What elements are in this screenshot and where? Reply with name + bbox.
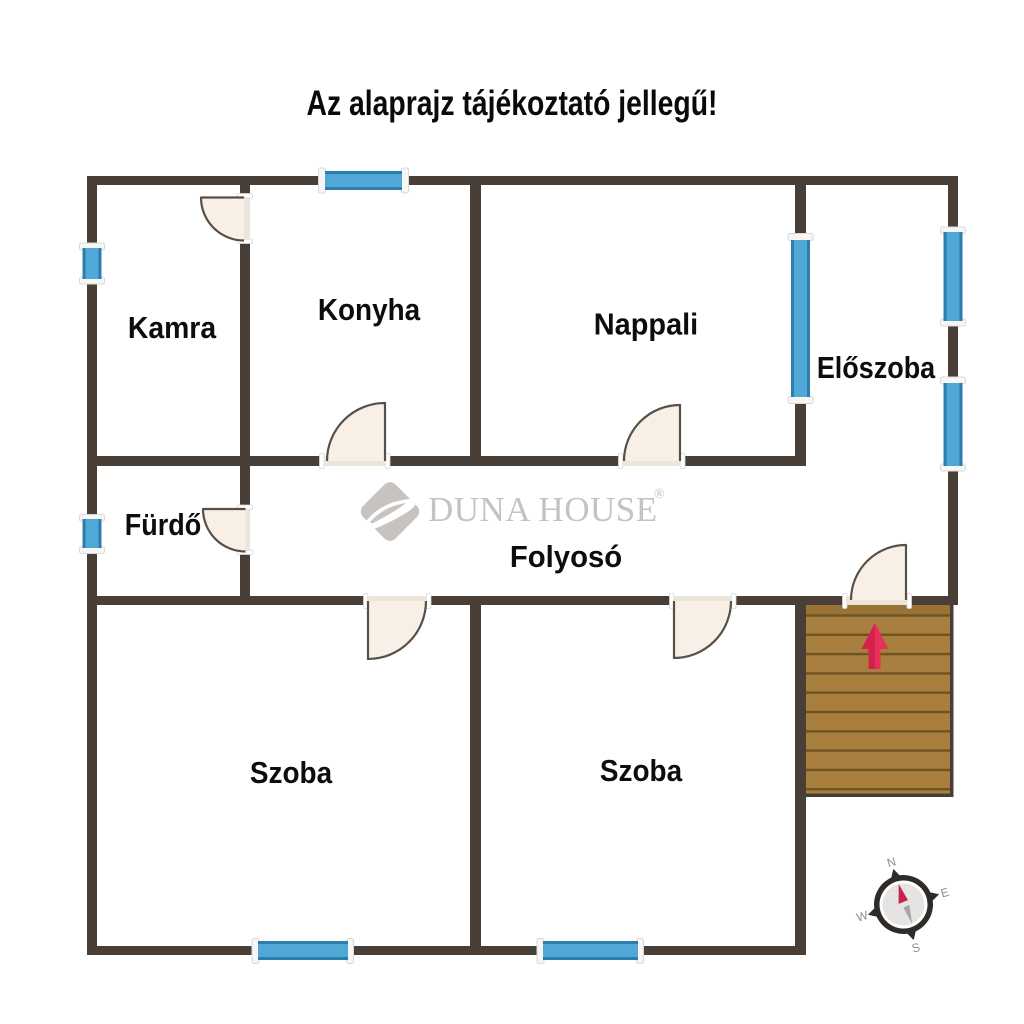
svg-text:Kamra: Kamra [128,311,217,345]
svg-text:®: ® [654,487,665,502]
svg-text:Fürdő: Fürdő [125,508,201,542]
svg-text:Konyha: Konyha [318,293,421,328]
svg-text:Nappali: Nappali [594,308,698,342]
svg-text:Folyosó: Folyosó [510,540,622,574]
svg-text:Szoba: Szoba [250,756,333,791]
svg-text:Szoba: Szoba [600,754,683,789]
svg-text:DUNA HOUSE: DUNA HOUSE [428,490,658,529]
svg-text:Az alaprajz tájékoztató jelleg: Az alaprajz tájékoztató jellegű! [307,83,718,123]
svg-text:Előszoba: Előszoba [817,351,936,385]
